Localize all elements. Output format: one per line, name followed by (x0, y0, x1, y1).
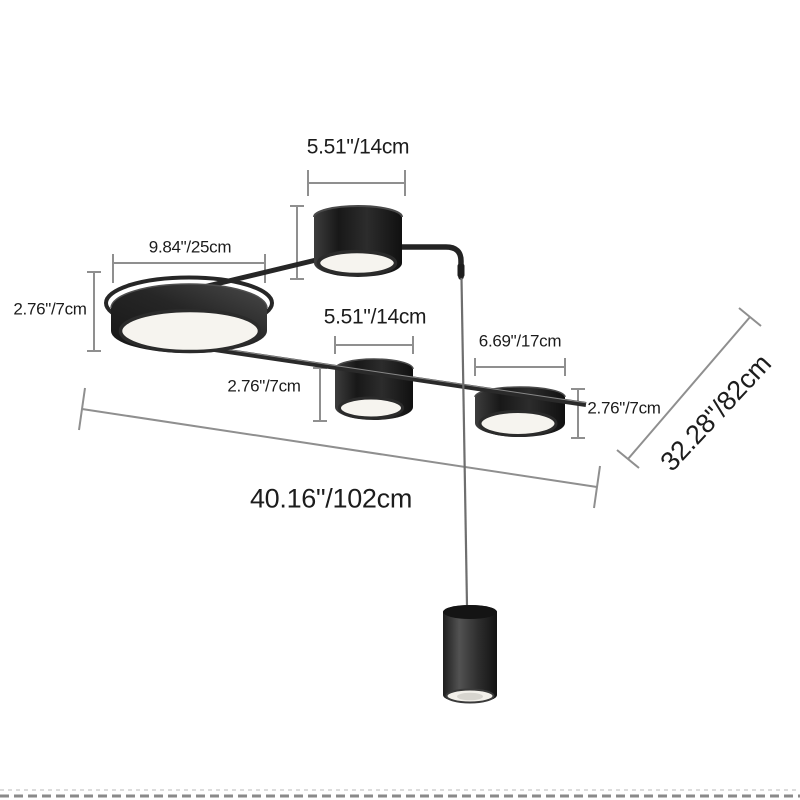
dim-label-right-drum-diameter: 6.69"/17cm (479, 333, 561, 350)
dim-label-top-drum-diameter: 5.51"/14cm (307, 137, 410, 158)
lamp-dimension-diagram: 5.51"/14cm 9.84"/25cm 2.76"/7cm 5.51"/14… (0, 0, 800, 800)
dim-top-drum-diameter-line (308, 170, 405, 196)
dim-label-middle-drum-diameter: 5.51"/14cm (324, 307, 427, 328)
large-disc-diffuser (121, 311, 260, 352)
dim-label-overall-width: 40.16"/102cm (250, 486, 412, 513)
large-disc-light (111, 284, 267, 353)
top-drum-light (314, 206, 402, 277)
cable-connector (458, 264, 465, 277)
dim-middle-drum-diameter-line (335, 336, 413, 354)
dim-right-drum-diameter-line (475, 358, 565, 376)
dim-right-drum-height-line (571, 389, 585, 438)
dim-label-right-drum-height: 2.76"/7cm (587, 400, 660, 417)
bottom-dashed-border (0, 790, 800, 796)
pendant-cable (462, 278, 468, 606)
dim-label-middle-drum-height: 2.76"/7cm (227, 378, 300, 395)
dim-large-disc-height-line (87, 272, 101, 351)
pendant-cylinder-light (443, 605, 497, 703)
diagram-canvas (0, 0, 800, 800)
right-drum-diffuser (480, 412, 556, 436)
dim-middle-drum-height-line (313, 368, 327, 421)
lamp-fixture (106, 206, 586, 703)
dim-label-large-disc-height: 2.76"/7cm (13, 301, 86, 318)
dim-label-large-disc-diameter: 9.84"/25cm (149, 239, 231, 256)
top-drum-diffuser (319, 252, 396, 275)
middle-drum-diffuser (340, 398, 403, 418)
